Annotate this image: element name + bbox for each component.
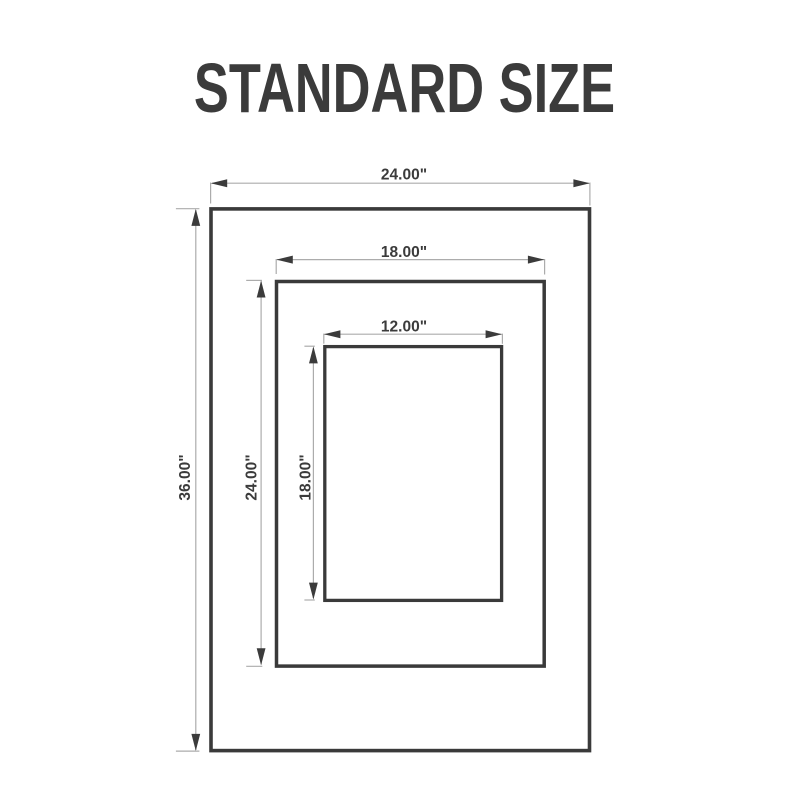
svg-text:24.00": 24.00" bbox=[243, 454, 260, 500]
svg-text:18.00": 18.00" bbox=[381, 244, 427, 261]
svg-text:36.00": 36.00" bbox=[177, 454, 194, 500]
svg-text:24.00": 24.00" bbox=[381, 166, 427, 183]
svg-text:STANDARD SIZE: STANDARD SIZE bbox=[194, 50, 615, 128]
svg-text:18.00": 18.00" bbox=[297, 454, 314, 500]
svg-text:12.00": 12.00" bbox=[381, 318, 427, 335]
